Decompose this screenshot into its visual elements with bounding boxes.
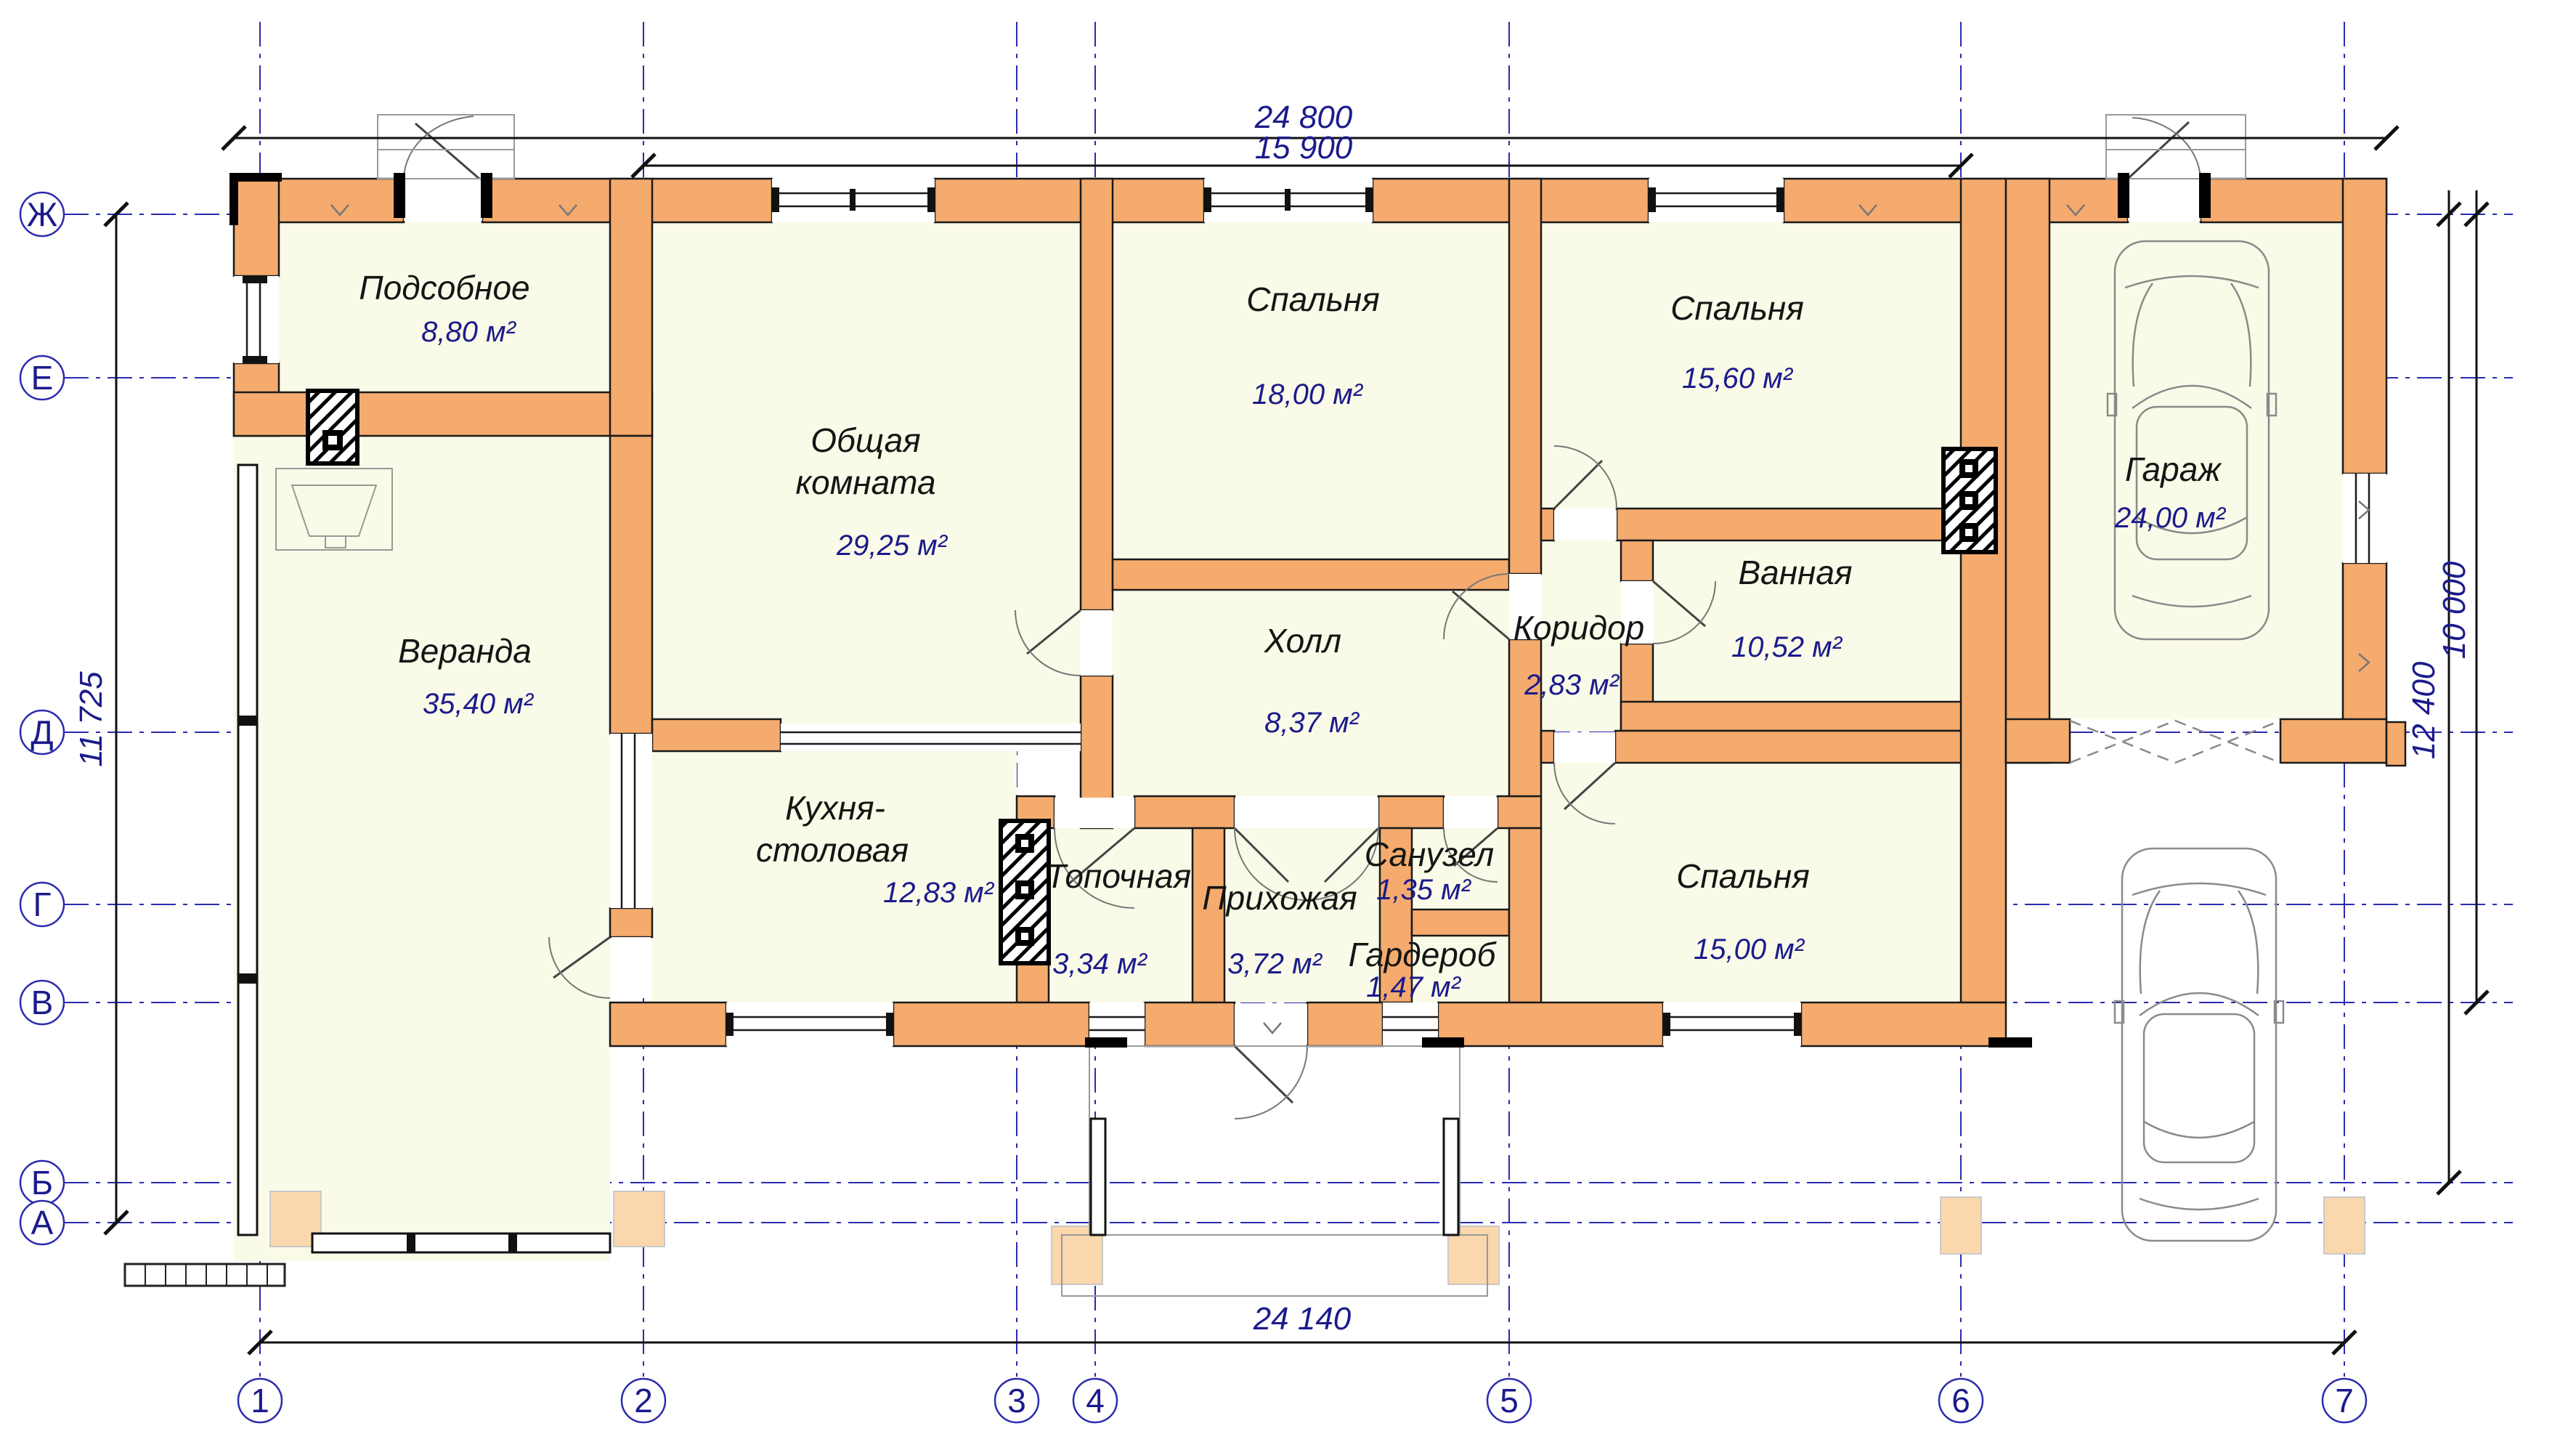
chimney-veranda-icon (308, 391, 357, 463)
chimney-topochnaya-icon (1001, 821, 1049, 963)
room-label-garderob: Гардероб (1349, 936, 1498, 973)
dim-right-inner: 12 400 (2406, 661, 2442, 759)
room-area-garazh: 24,00 м² (2114, 502, 2227, 534)
chimney-vannaya-icon (1943, 449, 1996, 552)
room-area-spalnya-2: 15,60 м² (1682, 362, 1794, 394)
room-area-topochnaya: 3,34 м² (1052, 948, 1147, 980)
axis-row-a: А (31, 1204, 54, 1241)
room-label-spalnya-2: Спальня (1670, 289, 1804, 327)
window-spalnya-1-top (1204, 179, 1373, 222)
dim-right-outer: 10 000 (2437, 561, 2472, 659)
window-spalnya-3-bottom (1663, 1002, 1801, 1046)
room-label-garazh: Гараж (2125, 450, 2222, 488)
room-area-kuhnya: 12,83 м² (883, 877, 995, 909)
room-area-vannaya: 10,52 м² (1731, 631, 1843, 663)
room-label-podsobnoe: Подсобное (359, 269, 529, 307)
axis-col-2: 2 (634, 1382, 653, 1419)
axis-row-zh: Ж (27, 195, 57, 233)
axis-col-1: 1 (251, 1382, 269, 1419)
room-area-sanuzel: 1,35 м² (1376, 874, 1471, 906)
dim-inner-width: 15 900 (1255, 130, 1353, 166)
room-label-veranda: Веранда (398, 632, 532, 670)
room-label-obshchaya-2: комната (795, 463, 935, 501)
floor-plan-canvas: 24 800 15 900 24 140 11 725 12 400 10 00… (0, 0, 2576, 1434)
room-area-garderob: 1,47 м² (1366, 971, 1461, 1003)
room-veranda-floor (234, 436, 610, 1261)
axis-col-7: 7 (2335, 1382, 2354, 1419)
veranda-steps (125, 1264, 285, 1286)
window-podsobnoe-left (234, 276, 279, 363)
room-label-spalnya-3: Спальня (1676, 857, 1810, 895)
axis-row-b: Б (31, 1164, 53, 1202)
axis-col-3: 3 (1007, 1382, 1026, 1419)
axis-row-g: Г (33, 886, 52, 923)
room-label-obshchaya-1: Общая (810, 421, 920, 459)
room-label-vannaya: Ванная (1738, 554, 1852, 591)
window-obshchaya-top (772, 179, 935, 222)
axis-row-d: Д (31, 713, 53, 751)
room-label-prihozhaya: Прихожая (1202, 879, 1357, 917)
room-area-holl: 8,37 м² (1264, 707, 1360, 739)
room-area-obshchaya: 29,25 м² (836, 530, 948, 562)
dim-bottom-width: 24 140 (1253, 1301, 1352, 1337)
room-area-spalnya-1: 18,00 м² (1252, 378, 1364, 410)
room-area-podsobnoe: 8,80 м² (421, 316, 516, 348)
dim-left-height: 11 725 (73, 671, 109, 767)
room-label-koridor: Коридор (1513, 609, 1644, 647)
room-area-koridor: 2,83 м² (1524, 669, 1620, 701)
room-podsobnoe-floor (277, 222, 610, 392)
room-label-spalnya-1: Спальня (1246, 280, 1380, 318)
window-garazh-right (2343, 474, 2386, 563)
window-veranda-kuhnya (610, 734, 652, 908)
room-holl-floor (1113, 590, 1509, 796)
room-area-prihozhaya: 3,72 м² (1227, 948, 1322, 980)
axis-col-4: 4 (1086, 1382, 1105, 1419)
axis-col-5: 5 (1500, 1382, 1519, 1419)
room-label-sanuzel: Санузел (1365, 835, 1495, 873)
veranda-glazing-bottom (312, 1234, 610, 1252)
window-spalnya-2-top (1649, 179, 1784, 222)
room-area-spalnya-3: 15,00 м² (1694, 933, 1805, 965)
window-kuhnya-bottom (726, 1002, 893, 1046)
veranda-glazing-left (238, 465, 257, 1235)
axis-row-e: Е (31, 359, 54, 397)
axis-row-v: В (31, 984, 54, 1021)
room-label-topochnaya: Топочная (1046, 857, 1191, 895)
opening-obshchaya-kuhnya (781, 724, 1081, 751)
room-area-veranda: 35,40 м² (423, 688, 535, 720)
room-label-kuhnya-1: Кухня- (785, 789, 885, 827)
room-label-holl: Холл (1264, 622, 1341, 660)
room-label-kuhnya-2: столовая (756, 831, 909, 869)
axis-col-6: 6 (1951, 1382, 1970, 1419)
